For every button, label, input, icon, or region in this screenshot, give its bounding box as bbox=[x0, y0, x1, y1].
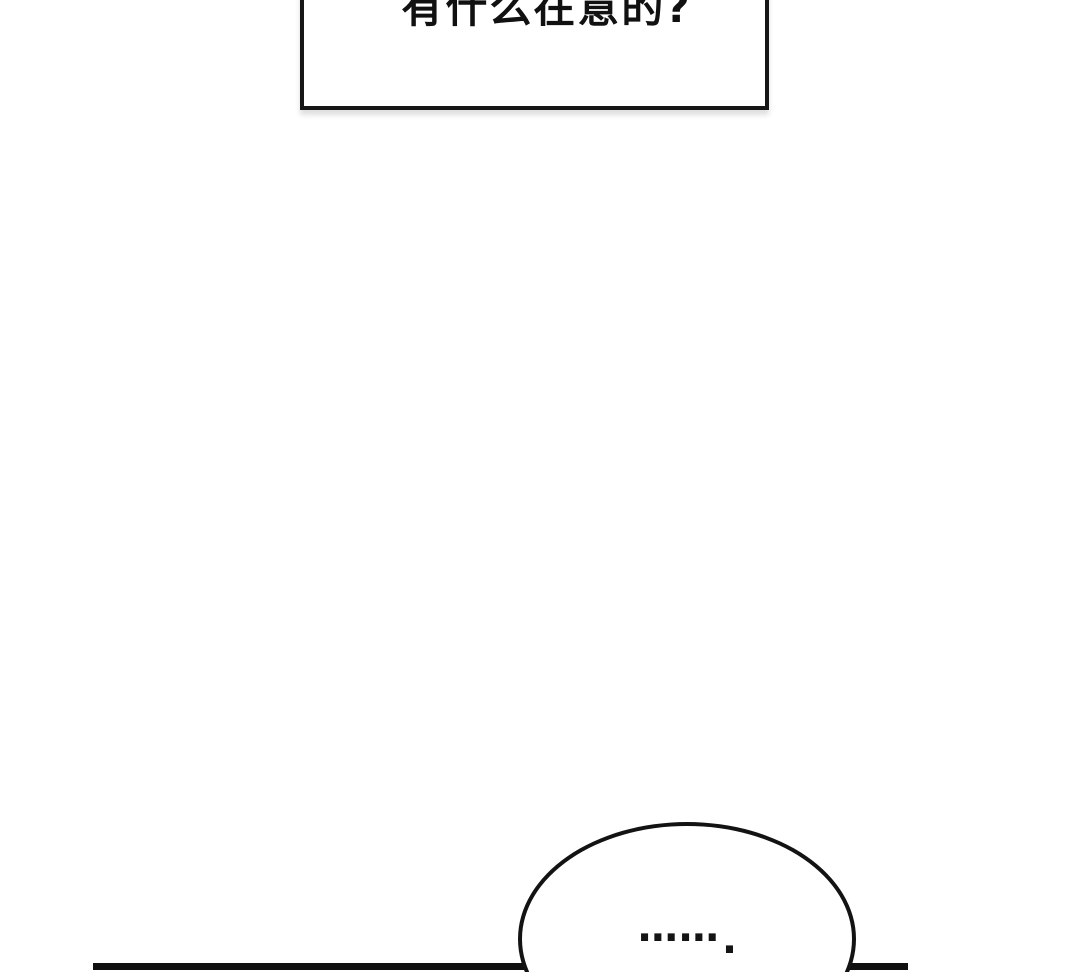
speech-bubble-ellipse: ……. bbox=[518, 822, 856, 972]
bubble-text: ……. bbox=[522, 912, 852, 956]
speech-box-top: 有什么在意的? bbox=[300, 0, 769, 110]
dialogue-text: 有什么在意的? bbox=[304, 0, 765, 30]
ellipsis-dots: …… bbox=[638, 905, 720, 951]
ellipsis-period: . bbox=[722, 917, 738, 963]
comic-page: 有什么在意的? ……. bbox=[0, 0, 1080, 972]
